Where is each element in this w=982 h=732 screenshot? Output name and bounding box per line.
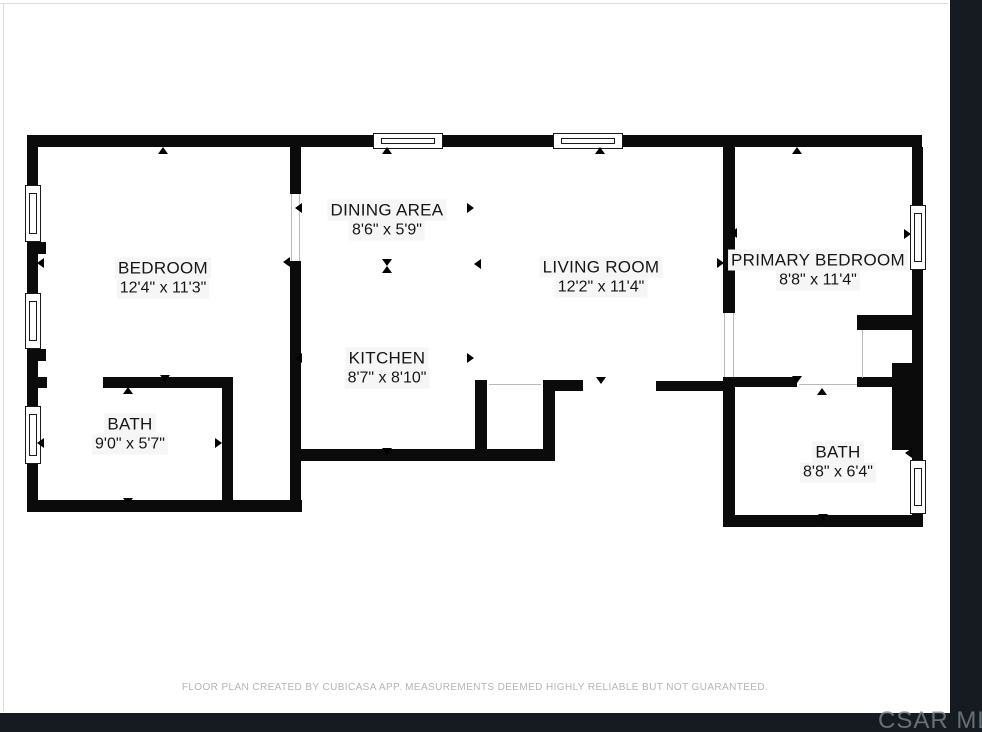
wall-segment xyxy=(723,377,735,527)
room-dimensions-kitchen: 8'7" x 8'10" xyxy=(345,369,430,389)
window-pane xyxy=(914,213,922,262)
viewer-background-right xyxy=(950,0,982,732)
opening-arrow xyxy=(382,448,392,455)
room-dimensions-bath-2: 8'8" x 6'4" xyxy=(800,463,876,483)
opening-arrow xyxy=(474,259,481,269)
opening-arrow xyxy=(595,147,605,154)
wall-segment xyxy=(912,147,923,205)
opening-arrow xyxy=(730,228,737,238)
window-pane xyxy=(381,138,435,144)
room-label-bedroom: BEDROOM12'4" x 11'3" xyxy=(115,258,211,299)
wall-segment xyxy=(475,380,487,461)
room-name-primary-bedroom: PRIMARY BEDROOM xyxy=(728,250,908,271)
opening-arrow xyxy=(382,266,392,273)
opening-arrow xyxy=(295,353,302,363)
room-label-dining-area: DINING AREA8'6" x 5'9" xyxy=(328,200,447,241)
room-label-bath: BATH9'0" x 5'7" xyxy=(92,414,168,455)
window xyxy=(25,406,41,464)
opening-arrow xyxy=(467,203,474,213)
room-dimensions-dining-area: 8'6" x 5'9" xyxy=(349,221,425,241)
wall-segment xyxy=(443,135,553,147)
room-label-bath-2: BATH8'8" x 6'4" xyxy=(800,442,876,483)
window xyxy=(553,133,623,149)
wall-segment xyxy=(623,135,922,147)
opening-arrow xyxy=(596,377,606,384)
opening-arrow xyxy=(37,258,44,268)
room-name-bath-2: BATH xyxy=(812,442,863,463)
window xyxy=(910,460,926,514)
room-dimensions-bath: 9'0" x 5'7" xyxy=(92,435,168,455)
opening-arrow xyxy=(160,375,170,382)
wall-segment xyxy=(912,450,923,460)
opening-arrow xyxy=(792,147,802,154)
room-dimensions-primary-bedroom: 8'8" x 11'4" xyxy=(776,271,860,291)
window-pane xyxy=(29,301,37,341)
window xyxy=(25,185,41,242)
window xyxy=(910,205,926,270)
room-label-kitchen: KITCHEN8'7" x 8'10" xyxy=(345,348,430,389)
mls-watermark: CSAR MLS xyxy=(878,707,982,732)
wall-segment xyxy=(857,377,892,387)
room-name-bedroom: BEDROOM xyxy=(115,258,211,279)
opening-arrow xyxy=(904,229,911,239)
wall-segment xyxy=(38,242,46,254)
disclaimer-text: FLOOR PLAN CREATED BY CUBICASA APP. MEAS… xyxy=(0,682,950,693)
wall-segment xyxy=(892,363,923,450)
opening-arrow xyxy=(382,147,392,154)
wall-segment xyxy=(543,391,555,461)
room-name-living-room: LIVING ROOM xyxy=(540,257,663,278)
door-opening xyxy=(733,313,734,377)
opening-arrow xyxy=(123,387,133,394)
floor-plan: BEDROOM12'4" x 11'3"DINING AREA8'6" x 5'… xyxy=(0,0,950,713)
window-pane xyxy=(561,138,615,144)
room-name-bath: BATH xyxy=(104,414,155,435)
wall-segment xyxy=(38,349,46,361)
window-pane xyxy=(29,414,37,456)
opening-arrow xyxy=(905,448,912,458)
room-dimensions-bedroom: 12'4" x 11'3" xyxy=(117,279,210,299)
door-opening xyxy=(724,313,725,377)
wall-segment xyxy=(27,135,373,147)
wall-segment xyxy=(27,349,38,406)
opening-arrow xyxy=(295,203,302,213)
opening-arrow xyxy=(467,353,474,363)
opening-arrow xyxy=(717,258,724,268)
opening-arrow xyxy=(215,438,222,448)
door-opening xyxy=(291,194,292,261)
wall-segment xyxy=(27,500,302,512)
window-pane xyxy=(914,468,922,506)
room-name-dining-area: DINING AREA xyxy=(328,200,447,221)
room-dimensions-living-room: 12'2" x 11'4" xyxy=(555,278,648,298)
opening-arrow xyxy=(792,376,802,383)
wall-segment xyxy=(222,388,233,512)
door-opening xyxy=(799,384,857,385)
wall-segment xyxy=(912,270,923,363)
wall-segment xyxy=(290,261,301,512)
wall-segment xyxy=(735,377,797,387)
viewer-background-bottom xyxy=(0,713,982,732)
window xyxy=(25,293,41,349)
wall-segment xyxy=(27,147,38,185)
wall-segment xyxy=(290,449,555,461)
opening-arrow xyxy=(37,438,44,448)
opening-arrow xyxy=(817,388,827,395)
door-opening xyxy=(489,384,541,385)
opening-arrow xyxy=(158,147,168,154)
opening-arrow xyxy=(382,259,392,266)
wall-segment xyxy=(38,377,47,388)
opening-arrow xyxy=(283,257,290,267)
opening-arrow xyxy=(123,498,133,505)
wall-segment xyxy=(290,147,301,194)
room-label-primary-bedroom: PRIMARY BEDROOM8'8" x 11'4" xyxy=(728,250,908,291)
floor-plan-viewer: BEDROOM12'4" x 11'3"DINING AREA8'6" x 5'… xyxy=(0,0,982,732)
wall-segment xyxy=(857,315,913,330)
wall-segment xyxy=(543,380,583,391)
room-label-living-room: LIVING ROOM12'2" x 11'4" xyxy=(540,257,663,298)
door-opening xyxy=(862,330,863,378)
opening-arrow xyxy=(818,514,828,521)
window-pane xyxy=(29,193,37,234)
room-name-kitchen: KITCHEN xyxy=(346,348,429,369)
